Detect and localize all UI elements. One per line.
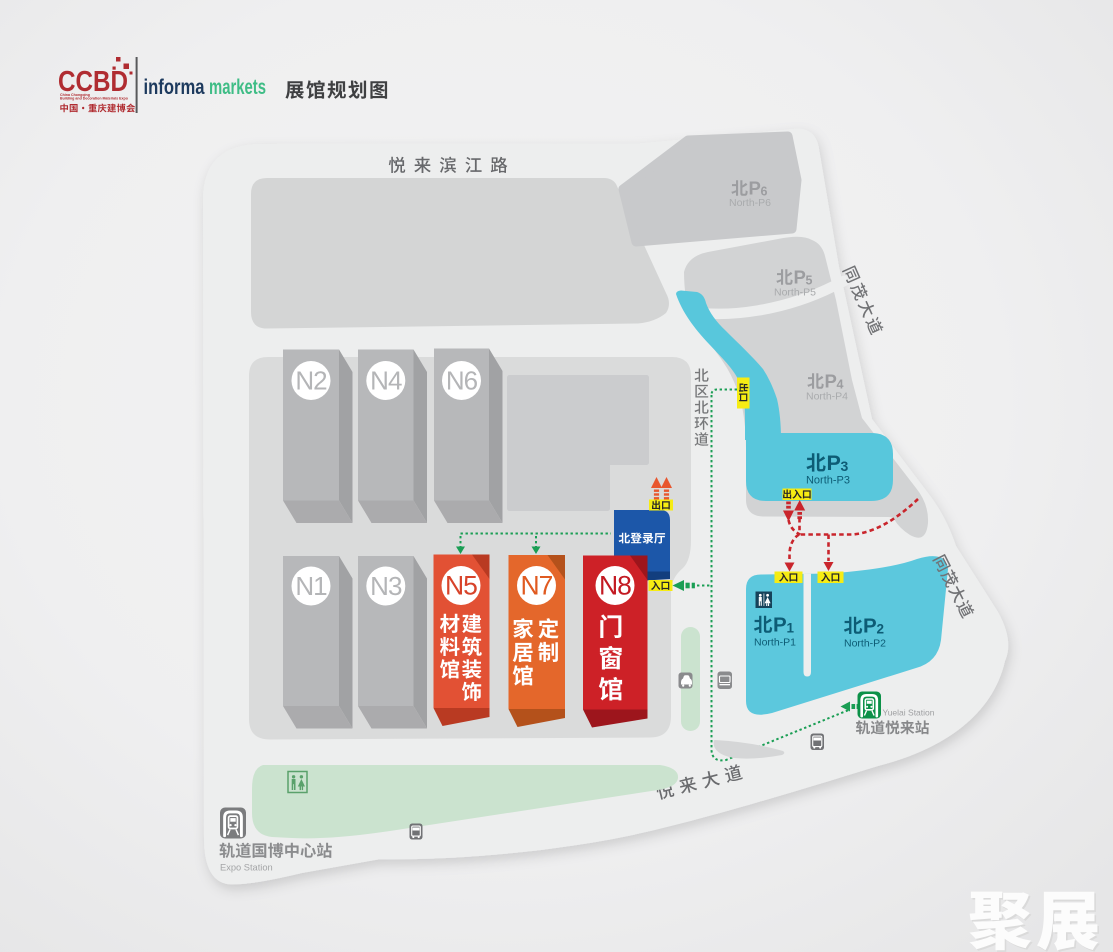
svg-text:1: 1 [787,621,795,636]
svg-text:P: P [773,614,787,637]
svg-text:Yuelai Station: Yuelai Station [883,708,935,718]
svg-text:N6: N6 [446,366,478,396]
svg-text:Building and Decoration Materi: Building and Decoration Materials Expo [60,97,129,101]
svg-text:P: P [827,451,841,475]
svg-text:Expo Station: Expo Station [220,863,273,873]
svg-text:North-P4: North-P4 [806,391,848,403]
svg-text:N5: N5 [445,571,477,601]
svg-text:North-P5: North-P5 [774,287,816,299]
svg-text:N1: N1 [295,571,327,601]
svg-text:P: P [794,267,806,288]
svg-text:5: 5 [806,274,813,288]
svg-text:markets: markets [209,76,266,99]
svg-text:N3: N3 [370,571,402,601]
svg-text:North-P6: North-P6 [729,197,771,209]
svg-text:North-P2: North-P2 [844,638,886,650]
svg-text:P: P [825,371,837,392]
svg-text:4: 4 [837,378,844,392]
svg-text:P: P [863,615,877,638]
svg-text:2: 2 [877,622,885,637]
svg-text:P: P [749,178,761,199]
svg-text:informa: informa [144,76,205,99]
svg-text:N7: N7 [521,571,553,601]
svg-text:N2: N2 [295,366,327,396]
svg-text:North-P3: North-P3 [806,475,850,487]
svg-text:N4: N4 [370,366,402,396]
svg-text:3: 3 [841,458,849,474]
svg-text:North-P1: North-P1 [754,637,796,649]
svg-text:N8: N8 [599,571,631,601]
